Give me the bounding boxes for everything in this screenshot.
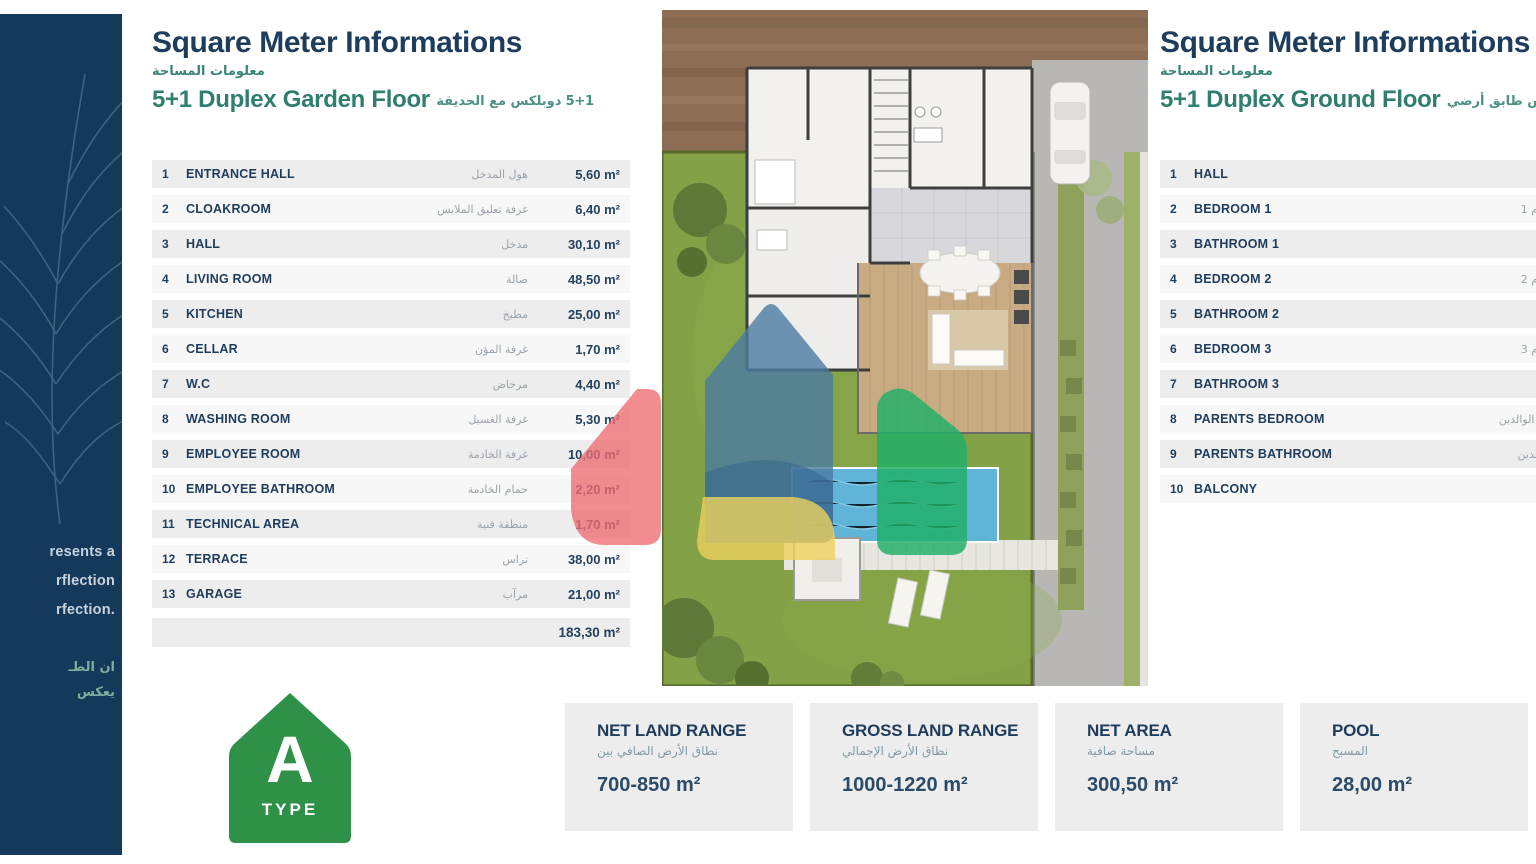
tagline-line1: resents a (50, 538, 115, 567)
info-box-title-arabic: مساحة صافية (1087, 744, 1155, 758)
row-number: 5 (162, 307, 186, 321)
info-box-value: 28,00 m² (1332, 774, 1528, 797)
table-row: 11 TECHNICAL AREA منطقة فنية 1,70 m² (152, 510, 630, 538)
room-label: PARENTS BATHROOM (1194, 447, 1332, 461)
room-label-arabic: غرفة النوم 3 (1521, 343, 1536, 356)
row-number: 1 (1170, 167, 1194, 181)
room-label-arabic: مرحاض (493, 378, 528, 391)
row-number: 9 (162, 447, 186, 461)
left-sidebar: resents a rflection rfection. ان الطـ يع… (0, 14, 122, 855)
table-row: 13 GARAGE مرآب 21,00 m² (152, 580, 630, 608)
tagline-ar-line1: ان الطـ (68, 656, 115, 681)
room-label: BEDROOM 1 (1194, 202, 1272, 216)
room-area-value: 1,70 m² (528, 342, 620, 357)
badge-letter: A (228, 726, 352, 792)
room-label: BATHROOM 3 (1194, 377, 1279, 391)
room-area-value: 5,30 m² (528, 412, 620, 427)
room-label: EMPLOYEE ROOM (186, 447, 300, 461)
room-label-arabic: غرفة الخادمة (468, 448, 528, 461)
left-panel-title: Square Meter Informations (152, 26, 522, 60)
right-subtitle-arabic: 5+1 دوبلكس طابق أرضي (1447, 94, 1536, 109)
room-label-arabic: مطبخ (503, 308, 528, 321)
info-box: NET AREA مساحة صافية 300,50 m² (1055, 703, 1283, 831)
info-box-title-arabic: نطاق الأرض الإجمالي (842, 744, 948, 758)
room-area-value: 5,60 m² (528, 167, 620, 182)
info-boxes: NET LAND RANGE نطاق الأرض الصافي بين 700… (565, 703, 1528, 831)
type-a-badge: A TYPE (228, 688, 352, 846)
table-row: 9 PARENTS BATHROOM حمام الوالدين (1160, 440, 1536, 468)
room-label: CELLAR (186, 342, 238, 356)
row-number: 10 (1170, 482, 1194, 496)
table-row: 3 HALL مدخل 30,10 m² (152, 230, 630, 258)
room-label: WASHING ROOM (186, 412, 290, 426)
room-label-arabic: غرفة النوم 1 (1521, 203, 1536, 216)
info-box-title: POOL (1332, 721, 1528, 741)
sidebar-tagline-arabic: ان الطـ يعكس (68, 656, 115, 705)
table-row: 2 BEDROOM 1 غرفة النوم 1 (1160, 195, 1536, 223)
room-label-arabic: حمام الخادمة (468, 483, 528, 496)
room-label: TECHNICAL AREA (186, 517, 299, 531)
table-row: 6 BEDROOM 3 غرفة النوم 3 (1160, 335, 1536, 363)
row-number: 3 (1170, 237, 1194, 251)
room-label: BEDROOM 3 (1194, 342, 1272, 356)
row-number: 2 (1170, 202, 1194, 216)
room-label: LIVING ROOM (186, 272, 272, 286)
table-row: 10 EMPLOYEE BATHROOM حمام الخادمة 2,20 m… (152, 475, 630, 503)
table-row: 9 EMPLOYEE ROOM غرفة الخادمة 10,00 m² (152, 440, 630, 468)
room-label-arabic: مرآب (503, 588, 528, 601)
garden-floor-total-row: 183,30 m² (152, 618, 630, 647)
room-area-value: 6,40 m² (528, 202, 620, 217)
left-panel-subtitle: 5+1 Duplex Garden Floor 5+1 دوبلكس مع ال… (152, 86, 604, 114)
table-row: 10 BALCONY شرفة (1160, 475, 1536, 503)
room-area-value: 2,20 m² (528, 482, 620, 497)
left-subtitle-en: 5+1 Duplex Garden Floor (152, 86, 430, 113)
info-box-title: NET AREA (1087, 721, 1283, 741)
info-box: NET LAND RANGE نطاق الأرض الصافي بين 700… (565, 703, 793, 831)
total-area-value: 183,30 m² (558, 625, 620, 640)
tagline-ar-line2: يعكس (68, 681, 115, 706)
room-area-value: 38,00 m² (528, 552, 620, 567)
table-row: 4 BEDROOM 2 غرفة النوم 2 (1160, 265, 1536, 293)
row-number: 8 (162, 412, 186, 426)
room-label-arabic: مدخل (501, 238, 528, 251)
room-area-value: 1,70 m² (528, 517, 620, 532)
brochure-page: resents a rflection rfection. ان الطـ يع… (0, 0, 1536, 864)
room-label: EMPLOYEE BATHROOM (186, 482, 335, 496)
tagline-line3: rfection. (50, 596, 115, 625)
row-number: 1 (162, 167, 186, 181)
info-box-title: NET LAND RANGE (597, 721, 793, 741)
right-panel-subtitle: 5+1 Duplex Ground Floor 5+1 دوبلكس طابق … (1160, 86, 1536, 114)
tagline-line2: rflection (50, 567, 115, 596)
row-number: 4 (1170, 272, 1194, 286)
info-box-value: 1000-1220 m² (842, 774, 1038, 797)
leaf-art-icon (0, 14, 122, 534)
sidebar-tagline: resents a rflection rfection. (50, 538, 115, 625)
room-label-arabic: غرفة الغسيل (468, 413, 528, 426)
room-label-arabic: غرفة نوم الوالدين (1499, 413, 1536, 426)
room-label: BALCONY (1194, 482, 1257, 496)
room-label: ENTRANCE HALL (186, 167, 295, 181)
garden-floor-table: 1 ENTRANCE HALL هول المدخل 5,60 m² 2 CLO… (152, 160, 630, 615)
room-area-value: 30,10 m² (528, 237, 620, 252)
room-label: BEDROOM 2 (1194, 272, 1272, 286)
room-label: GARAGE (186, 587, 242, 601)
table-row: 4 LIVING ROOM صالة 48,50 m² (152, 265, 630, 293)
table-row: 2 CLOAKROOM غرفة تعليق الملابس 6,40 m² (152, 195, 630, 223)
room-label-arabic: تراس (502, 553, 528, 566)
row-number: 3 (162, 237, 186, 251)
table-row: 1 ENTRANCE HALL هول المدخل 5,60 m² (152, 160, 630, 188)
table-row: 3 BATHROOM 1 حمام 1 (1160, 230, 1536, 258)
table-row: 8 PARENTS BEDROOM غرفة نوم الوالدين (1160, 405, 1536, 433)
row-number: 7 (162, 377, 186, 391)
room-label: PARENTS BEDROOM (1194, 412, 1325, 426)
info-box-title-arabic: نطاق الأرض الصافي بين (597, 744, 718, 758)
room-label-arabic: غرفة النوم 2 (1521, 273, 1536, 286)
table-row: 5 BATHROOM 2 حمام 2 (1160, 300, 1536, 328)
room-label: TERRACE (186, 552, 248, 566)
row-number: 2 (162, 202, 186, 216)
table-row: 1 HALL مدخل (1160, 160, 1536, 188)
info-box-value: 700-850 m² (597, 774, 793, 797)
left-subtitle-arabic: 5+1 دوبلكس مع الحديقة (436, 94, 594, 109)
row-number: 6 (162, 342, 186, 356)
table-row: 6 CELLAR غرفة المؤن 1,70 m² (152, 335, 630, 363)
row-number: 13 (162, 587, 186, 601)
left-panel-title-arabic: معلومات المساحة (152, 64, 265, 79)
room-label-arabic: غرفة تعليق الملابس (437, 203, 528, 216)
room-label-arabic: صالة (506, 273, 528, 286)
ground-floor-table: 1 HALL مدخل 2 BEDROOM 1 غرفة النوم 1 3 B… (1160, 160, 1536, 510)
row-number: 9 (1170, 447, 1194, 461)
row-number: 5 (1170, 307, 1194, 321)
table-row: 7 W.C مرحاض 4,40 m² (152, 370, 630, 398)
room-area-value: 21,00 m² (528, 587, 620, 602)
room-label: BATHROOM 2 (1194, 307, 1279, 321)
room-label-arabic: هول المدخل (471, 168, 528, 181)
room-label-arabic: حمام الوالدين (1517, 448, 1536, 461)
info-box: GROSS LAND RANGE نطاق الأرض الإجمالي 100… (810, 703, 1038, 831)
room-label-arabic: غرفة المؤن (475, 343, 528, 356)
room-area-value: 4,40 m² (528, 377, 620, 392)
row-number: 10 (162, 482, 186, 496)
table-row: 12 TERRACE تراس 38,00 m² (152, 545, 630, 573)
info-box-title: GROSS LAND RANGE (842, 721, 1038, 741)
row-number: 7 (1170, 377, 1194, 391)
info-box-value: 300,50 m² (1087, 774, 1283, 797)
badge-word: TYPE (228, 800, 352, 820)
row-number: 6 (1170, 342, 1194, 356)
info-box-title-arabic: المسبح (1332, 744, 1368, 758)
row-number: 12 (162, 552, 186, 566)
table-row: 8 WASHING ROOM غرفة الغسيل 5,30 m² (152, 405, 630, 433)
room-label: W.C (186, 377, 210, 391)
table-row: 7 BATHROOM 3 حمام 3 (1160, 370, 1536, 398)
room-label: KITCHEN (186, 307, 243, 321)
right-panel-title-arabic: معلومات المساحة (1160, 64, 1273, 79)
room-label: HALL (186, 237, 220, 251)
right-subtitle-en: 5+1 Duplex Ground Floor (1160, 86, 1440, 113)
room-area-value: 48,50 m² (528, 272, 620, 287)
row-number: 11 (162, 517, 186, 531)
site-plan-image (662, 10, 1148, 686)
car-icon (1050, 82, 1090, 184)
room-label: BATHROOM 1 (1194, 237, 1279, 251)
info-box: POOL المسبح 28,00 m² (1300, 703, 1528, 831)
room-label-arabic: منطقة فنية (477, 518, 528, 531)
room-area-value: 10,00 m² (528, 447, 620, 462)
room-label: HALL (1194, 167, 1228, 181)
row-number: 8 (1170, 412, 1194, 426)
table-row: 5 KITCHEN مطبخ 25,00 m² (152, 300, 630, 328)
room-area-value: 25,00 m² (528, 307, 620, 322)
room-label: CLOAKROOM (186, 202, 271, 216)
right-panel-title: Square Meter Informations (1160, 26, 1530, 60)
row-number: 4 (162, 272, 186, 286)
